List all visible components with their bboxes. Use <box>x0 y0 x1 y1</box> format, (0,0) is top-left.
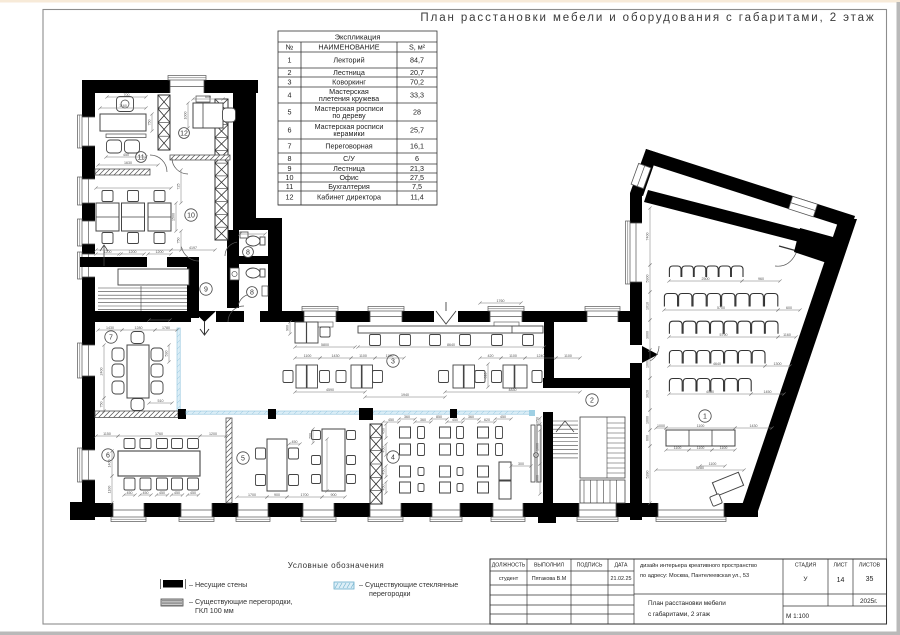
svg-text:450: 450 <box>382 447 386 453</box>
svg-text:ГКЛ 100 мм: ГКЛ 100 мм <box>195 606 234 615</box>
svg-text:по дереву: по дереву <box>332 111 366 120</box>
svg-text:ЛИСТ: ЛИСТ <box>834 563 849 569</box>
svg-text:12: 12 <box>286 193 294 202</box>
svg-text:3: 3 <box>288 78 292 87</box>
svg-text:8: 8 <box>288 154 292 163</box>
svg-text:Лестница: Лестница <box>333 68 365 77</box>
svg-text:1300: 1300 <box>774 362 782 366</box>
svg-text:Офис: Офис <box>339 173 359 182</box>
svg-text:1100: 1100 <box>564 354 572 358</box>
svg-text:1100: 1100 <box>697 424 705 428</box>
svg-text:450: 450 <box>452 418 458 422</box>
svg-text:3020: 3020 <box>646 390 650 398</box>
svg-text:ПОДПИСЬ: ПОДПИСЬ <box>577 563 603 569</box>
svg-text:– Несущие стены: – Несущие стены <box>189 580 247 589</box>
svg-text:700: 700 <box>309 433 313 439</box>
svg-text:21,3: 21,3 <box>410 164 424 173</box>
svg-text:с габаритами, 2 этаж: с габаритами, 2 этаж <box>648 610 711 618</box>
svg-text:S, м²: S, м² <box>409 43 426 52</box>
svg-text:1430: 1430 <box>106 326 114 330</box>
svg-text:450: 450 <box>127 491 133 495</box>
svg-text:450: 450 <box>292 440 298 444</box>
svg-text:1150: 1150 <box>386 354 394 358</box>
svg-text:450: 450 <box>123 153 129 157</box>
svg-text:4080: 4080 <box>706 390 714 394</box>
svg-text:70,2: 70,2 <box>410 78 424 87</box>
svg-text:1000: 1000 <box>184 112 188 120</box>
svg-text:1760: 1760 <box>155 432 163 436</box>
svg-text:1000: 1000 <box>536 443 540 451</box>
svg-text:7400: 7400 <box>646 233 650 241</box>
svg-text:ДАТА: ДАТА <box>614 563 628 569</box>
svg-text:1280: 1280 <box>135 326 143 330</box>
svg-text:1150: 1150 <box>103 432 111 436</box>
svg-text:5700: 5700 <box>717 306 725 310</box>
svg-text:2: 2 <box>590 398 594 405</box>
svg-text:610: 610 <box>484 373 488 379</box>
svg-text:– Существующие перегородки,: – Существующие перегородки, <box>189 597 293 606</box>
svg-text:12: 12 <box>180 131 188 138</box>
svg-text:1500: 1500 <box>172 213 176 221</box>
svg-text:850: 850 <box>436 415 442 419</box>
svg-text:25,7: 25,7 <box>410 126 424 135</box>
svg-text:2500: 2500 <box>702 277 710 281</box>
svg-text:Пятакова В.М: Пятакова В.М <box>532 576 567 582</box>
svg-text:360: 360 <box>468 415 474 419</box>
svg-text:4640: 4640 <box>713 362 721 366</box>
svg-text:9: 9 <box>204 287 208 294</box>
svg-text:27,5: 27,5 <box>410 173 424 182</box>
svg-text:4: 4 <box>288 91 292 100</box>
svg-text:8: 8 <box>246 250 250 257</box>
svg-text:33,3: 33,3 <box>410 91 424 100</box>
svg-text:620: 620 <box>484 418 490 422</box>
svg-text:ЛИСТОВ: ЛИСТОВ <box>859 563 881 569</box>
svg-text:1430: 1430 <box>750 424 758 428</box>
svg-text:6: 6 <box>106 453 110 460</box>
svg-text:– Существующие стеклянные: – Существующие стеклянные <box>359 580 458 589</box>
svg-text:1760: 1760 <box>497 299 505 303</box>
svg-text:450: 450 <box>382 428 386 434</box>
svg-text:НАИМЕНОВАНИЕ: НАИМЕНОВАНИЕ <box>318 43 379 52</box>
svg-text:450: 450 <box>143 491 149 495</box>
svg-text:3000: 3000 <box>646 331 650 339</box>
svg-text:900: 900 <box>331 493 337 497</box>
svg-text:1: 1 <box>703 414 707 421</box>
svg-text:Кабинет директора: Кабинет директора <box>317 193 381 202</box>
svg-text:1160: 1160 <box>119 104 127 108</box>
svg-text:725: 725 <box>177 184 181 190</box>
svg-text:1100: 1100 <box>359 354 367 358</box>
svg-text:4197: 4197 <box>189 246 197 250</box>
svg-text:Коворкинг: Коворкинг <box>332 78 366 87</box>
svg-text:900: 900 <box>274 493 280 497</box>
svg-text:1100: 1100 <box>509 354 517 358</box>
svg-text:9: 9 <box>288 164 292 173</box>
svg-text:1000: 1000 <box>536 475 540 483</box>
svg-text:1100: 1100 <box>709 462 717 466</box>
svg-text:1: 1 <box>288 56 292 65</box>
svg-text:2025г.: 2025г. <box>860 598 878 605</box>
svg-text:1010: 1010 <box>646 302 650 310</box>
svg-text:1100: 1100 <box>720 446 728 450</box>
svg-text:Экспликация: Экспликация <box>335 32 381 41</box>
svg-text:21.02.25: 21.02.25 <box>611 576 632 582</box>
svg-text:плетения кружева: плетения кружева <box>319 94 379 103</box>
svg-text:600: 600 <box>786 306 792 310</box>
svg-text:20,7: 20,7 <box>410 68 424 77</box>
svg-text:6: 6 <box>415 154 419 163</box>
svg-text:1200: 1200 <box>129 250 137 254</box>
svg-text:960: 960 <box>286 325 290 331</box>
svg-text:керамики: керамики <box>333 129 364 138</box>
svg-text:№: № <box>286 43 294 52</box>
svg-text:750: 750 <box>177 238 181 244</box>
svg-text:дизайн интерьера креативного: дизайн интерьера креативного пространств… <box>640 562 757 569</box>
svg-text:1200: 1200 <box>156 250 164 254</box>
svg-text:1200: 1200 <box>104 250 112 254</box>
svg-text:8640: 8640 <box>447 343 455 347</box>
svg-text:14: 14 <box>837 577 845 584</box>
svg-text:3: 3 <box>391 359 395 366</box>
svg-text:450: 450 <box>174 491 180 495</box>
svg-text:28: 28 <box>413 108 421 117</box>
svg-text:1000: 1000 <box>646 360 650 368</box>
svg-text:1100: 1100 <box>304 354 312 358</box>
svg-text:1700: 1700 <box>248 493 256 497</box>
svg-text:450: 450 <box>190 491 196 495</box>
svg-text:300: 300 <box>518 462 524 466</box>
svg-text:1400: 1400 <box>108 460 112 468</box>
svg-text:450: 450 <box>382 485 386 491</box>
svg-text:План расстановки мебели: План расстановки мебели <box>648 599 726 607</box>
svg-text:1700: 1700 <box>301 493 309 497</box>
svg-text:СТАДИЯ: СТАДИЯ <box>795 563 816 569</box>
svg-text:перегородки: перегородки <box>369 589 411 598</box>
svg-text:10: 10 <box>187 213 195 220</box>
svg-text:11: 11 <box>286 182 293 191</box>
svg-text:600: 600 <box>646 435 650 441</box>
svg-text:35: 35 <box>866 576 874 583</box>
svg-text:С/У: С/У <box>343 154 355 163</box>
svg-text:450: 450 <box>159 491 165 495</box>
svg-text:8: 8 <box>250 290 254 297</box>
svg-text:М 1:100: М 1:100 <box>786 613 810 620</box>
svg-text:11,4: 11,4 <box>410 193 423 202</box>
svg-text:16,1: 16,1 <box>410 142 424 151</box>
svg-text:420: 420 <box>488 354 494 358</box>
svg-text:1100: 1100 <box>674 446 682 450</box>
svg-text:5: 5 <box>241 456 245 463</box>
svg-text:450: 450 <box>388 418 394 422</box>
svg-text:6: 6 <box>288 126 292 135</box>
svg-text:1630: 1630 <box>124 161 132 165</box>
svg-text:1780: 1780 <box>162 326 170 330</box>
svg-text:1100: 1100 <box>697 446 705 450</box>
svg-text:Бухгалтерия: Бухгалтерия <box>328 182 370 191</box>
svg-text:450: 450 <box>382 469 386 475</box>
svg-text:4590: 4590 <box>326 388 334 392</box>
svg-text:360: 360 <box>420 418 426 422</box>
svg-text:2400: 2400 <box>100 368 104 376</box>
svg-text:1000: 1000 <box>646 416 650 424</box>
svg-text:750: 750 <box>100 402 104 408</box>
svg-text:ДОЛЖНОСТЬ: ДОЛЖНОСТЬ <box>492 563 526 569</box>
svg-text:84,7: 84,7 <box>410 56 424 65</box>
svg-text:1050: 1050 <box>536 417 540 425</box>
svg-text:11: 11 <box>137 155 144 162</box>
svg-text:600: 600 <box>205 95 211 99</box>
svg-text:5280: 5280 <box>646 471 650 479</box>
svg-text:5800: 5800 <box>321 343 329 347</box>
svg-text:1240: 1240 <box>537 354 545 358</box>
svg-text:Лестница: Лестница <box>333 164 365 173</box>
svg-text:510: 510 <box>158 399 164 403</box>
svg-text:ВЫПОЛНИЛ: ВЫПОЛНИЛ <box>534 563 564 569</box>
svg-text:2: 2 <box>288 68 292 77</box>
svg-text:5: 5 <box>288 108 292 117</box>
svg-text:360: 360 <box>404 415 410 419</box>
svg-text:530: 530 <box>165 351 169 357</box>
svg-text:700: 700 <box>124 93 130 97</box>
svg-text:Лекторий: Лекторий <box>333 56 364 65</box>
svg-text:5790: 5790 <box>720 333 728 337</box>
svg-text:по адресу: Москва, Пантелее: по адресу: Москва, Пантелеевская ул., 53 <box>640 573 749 579</box>
svg-text:1160: 1160 <box>783 333 791 337</box>
svg-text:студент: студент <box>499 576 519 582</box>
svg-text:1940: 1940 <box>401 393 409 397</box>
svg-text:960: 960 <box>758 277 764 281</box>
svg-text:1430: 1430 <box>332 354 340 358</box>
svg-text:450: 450 <box>500 415 506 419</box>
svg-text:1100: 1100 <box>108 486 112 494</box>
svg-text:1450: 1450 <box>764 390 772 394</box>
svg-text:750: 750 <box>148 120 152 126</box>
svg-text:1200: 1200 <box>209 432 217 436</box>
svg-text:7: 7 <box>109 335 113 342</box>
svg-text:10: 10 <box>286 173 294 182</box>
svg-text:4830: 4830 <box>509 388 517 392</box>
svg-text:7: 7 <box>288 142 292 151</box>
svg-text:Условные обозначения: Условные обозначения <box>288 561 384 570</box>
svg-text:5300: 5300 <box>646 275 650 283</box>
svg-text:4: 4 <box>391 455 395 462</box>
svg-text:Переговорная: Переговорная <box>325 142 372 151</box>
svg-text:1000: 1000 <box>657 424 665 428</box>
svg-text:План расстановки мебели и: План расстановки мебели и оборудования с… <box>420 12 875 24</box>
svg-text:7,5: 7,5 <box>412 182 422 191</box>
